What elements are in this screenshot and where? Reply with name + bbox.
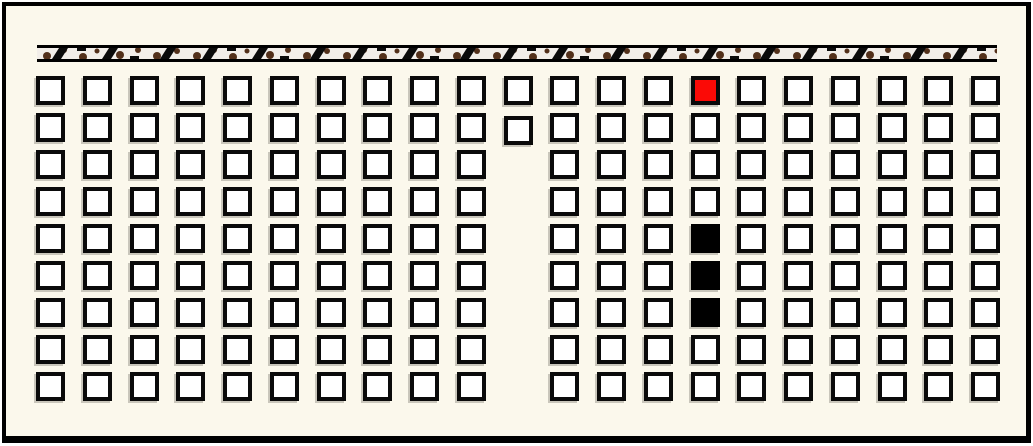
grid-cell[interactable] [971, 261, 1000, 290]
grid-cell[interactable] [176, 150, 205, 179]
grid-cell[interactable] [644, 335, 673, 364]
grid-cell[interactable] [363, 224, 392, 253]
grid-cell[interactable] [176, 261, 205, 290]
grid-cell[interactable] [223, 261, 252, 290]
grid-cell[interactable] [130, 76, 159, 105]
grid-cell[interactable] [597, 298, 626, 327]
grid-cell[interactable] [457, 261, 486, 290]
grid-cell[interactable] [644, 76, 673, 105]
grid-cell[interactable] [317, 150, 346, 179]
grid-cell[interactable] [130, 298, 159, 327]
grid-cell[interactable] [597, 187, 626, 216]
grid-cell[interactable] [644, 187, 673, 216]
grid-cell[interactable] [130, 113, 159, 142]
grid-cell[interactable] [550, 187, 579, 216]
grid-cell[interactable] [924, 372, 953, 401]
grid-cell[interactable] [971, 224, 1000, 253]
grid-cell[interactable] [36, 372, 65, 401]
grid-cell[interactable] [550, 150, 579, 179]
grid-cell[interactable] [410, 76, 439, 105]
grid-cell[interactable] [36, 76, 65, 105]
grid-cell[interactable] [878, 113, 907, 142]
grid-cell[interactable] [878, 187, 907, 216]
filled-cell-black[interactable] [691, 298, 720, 327]
grid-cell[interactable] [317, 261, 346, 290]
textured-bar [37, 45, 997, 62]
grid-cell[interactable] [317, 224, 346, 253]
grid-cell[interactable] [831, 76, 860, 105]
grid-cell[interactable] [644, 150, 673, 179]
grid-cell[interactable] [831, 298, 860, 327]
grid-cell[interactable] [410, 187, 439, 216]
grid-cell[interactable] [83, 298, 112, 327]
grid-cell[interactable] [737, 113, 766, 142]
grid-cell[interactable] [36, 113, 65, 142]
grid-cell[interactable] [457, 335, 486, 364]
grid-cell[interactable] [130, 187, 159, 216]
grid-cell[interactable] [644, 261, 673, 290]
grid-cell[interactable] [223, 113, 252, 142]
grid-cell[interactable] [878, 150, 907, 179]
grid-cell[interactable] [176, 372, 205, 401]
grid-cell[interactable] [878, 261, 907, 290]
grid-cell[interactable] [644, 372, 673, 401]
grid-cell[interactable] [924, 335, 953, 364]
grid-cell[interactable] [36, 261, 65, 290]
grid-cell[interactable] [410, 261, 439, 290]
grid-cell[interactable] [36, 298, 65, 327]
grid-cell[interactable] [83, 150, 112, 179]
grid-cell[interactable] [410, 224, 439, 253]
grid-cell[interactable] [550, 298, 579, 327]
grid-cell[interactable] [363, 187, 392, 216]
grid-cell[interactable] [550, 113, 579, 142]
grid-cell[interactable] [924, 187, 953, 216]
grid-cell[interactable] [737, 261, 766, 290]
grid-cell[interactable] [737, 372, 766, 401]
grid-cell[interactable] [691, 372, 720, 401]
grid-cell[interactable] [363, 113, 392, 142]
grid-cell[interactable] [644, 224, 673, 253]
grid-cell[interactable] [504, 76, 533, 105]
grid-cell[interactable] [270, 76, 299, 105]
grid-cell[interactable] [270, 298, 299, 327]
grid-cell[interactable] [130, 261, 159, 290]
grid-cell[interactable] [223, 76, 252, 105]
grid-cell[interactable] [176, 76, 205, 105]
grid-cell[interactable] [83, 261, 112, 290]
grid-cell[interactable] [176, 335, 205, 364]
grid-cell[interactable] [223, 335, 252, 364]
grid-cell[interactable] [550, 224, 579, 253]
grid-cell[interactable] [363, 261, 392, 290]
grid-cell[interactable] [176, 224, 205, 253]
grid-cell[interactable] [363, 150, 392, 179]
grid-cell[interactable] [924, 76, 953, 105]
grid-cell[interactable] [410, 150, 439, 179]
grid-cell[interactable] [924, 261, 953, 290]
grid-cell[interactable] [784, 224, 813, 253]
grid-cell[interactable] [831, 261, 860, 290]
grid-cell[interactable] [971, 113, 1000, 142]
filled-cell-black[interactable] [691, 261, 720, 290]
grid-cell[interactable] [784, 76, 813, 105]
grid-cell[interactable] [36, 224, 65, 253]
grid-cell[interactable] [597, 261, 626, 290]
grid-cell[interactable] [550, 76, 579, 105]
grid-cell[interactable] [270, 335, 299, 364]
grid-cell[interactable] [924, 224, 953, 253]
grid-cell[interactable] [223, 150, 252, 179]
grid-cell[interactable] [831, 150, 860, 179]
grid-cell[interactable] [36, 150, 65, 179]
grid-cell[interactable] [223, 187, 252, 216]
grid-cell[interactable] [971, 335, 1000, 364]
grid-cell[interactable] [83, 113, 112, 142]
grid-cell[interactable] [737, 76, 766, 105]
grid-cell[interactable] [176, 187, 205, 216]
grid-cell[interactable] [36, 335, 65, 364]
grid-cell[interactable] [550, 261, 579, 290]
grid-cell[interactable] [831, 372, 860, 401]
grid-cell[interactable] [457, 298, 486, 327]
grid-cell[interactable] [597, 150, 626, 179]
grid-cell[interactable] [784, 187, 813, 216]
grid-cell[interactable] [691, 113, 720, 142]
grid-cell[interactable] [176, 298, 205, 327]
grid-cell[interactable] [831, 335, 860, 364]
grid-cell[interactable] [363, 335, 392, 364]
grid-cell[interactable] [270, 261, 299, 290]
grid-cell[interactable] [597, 372, 626, 401]
grid-cell[interactable] [223, 224, 252, 253]
grid-cell[interactable] [878, 76, 907, 105]
textured-bar-pattern [37, 48, 997, 59]
grid-cell[interactable] [317, 187, 346, 216]
grid-cell[interactable] [83, 187, 112, 216]
grid-cell[interactable] [971, 298, 1000, 327]
grid-cell[interactable] [83, 335, 112, 364]
grid-cell[interactable] [597, 76, 626, 105]
grid-cell[interactable] [83, 76, 112, 105]
grid-cell[interactable] [410, 372, 439, 401]
grid-cell[interactable] [831, 187, 860, 216]
grid-cell[interactable] [971, 150, 1000, 179]
grid-cell[interactable] [550, 335, 579, 364]
grid-cell[interactable] [270, 150, 299, 179]
grid-cell[interactable] [831, 224, 860, 253]
grid-cell[interactable] [176, 113, 205, 142]
grid-cell[interactable] [737, 335, 766, 364]
grid-cell[interactable] [363, 298, 392, 327]
grid-cell[interactable] [644, 113, 673, 142]
grid-cell[interactable] [924, 113, 953, 142]
grid-cell[interactable] [457, 150, 486, 179]
grid-cell[interactable] [971, 187, 1000, 216]
grid-cell[interactable] [36, 187, 65, 216]
grid-cell[interactable] [878, 372, 907, 401]
grid-cell[interactable] [130, 372, 159, 401]
grid-cell[interactable] [317, 113, 346, 142]
grid-cell[interactable] [130, 224, 159, 253]
grid-cell[interactable] [597, 224, 626, 253]
grid-cell[interactable] [410, 335, 439, 364]
grid-cell[interactable] [457, 372, 486, 401]
grid-cell[interactable] [784, 335, 813, 364]
grid-cell[interactable] [691, 335, 720, 364]
grid-cell[interactable] [270, 224, 299, 253]
grid-cell[interactable] [737, 224, 766, 253]
grid-cell[interactable] [784, 298, 813, 327]
grid-cell[interactable] [504, 116, 533, 145]
grid-cell[interactable] [410, 298, 439, 327]
grid-cell[interactable] [737, 187, 766, 216]
grid-cell[interactable] [784, 150, 813, 179]
grid-cell[interactable] [83, 372, 112, 401]
grid-cell[interactable] [130, 335, 159, 364]
grid-cell[interactable] [597, 113, 626, 142]
grid-cell[interactable] [270, 372, 299, 401]
grid-cell[interactable] [784, 372, 813, 401]
grid-cell[interactable] [878, 298, 907, 327]
grid-cell[interactable] [737, 298, 766, 327]
grid-cell[interactable] [457, 224, 486, 253]
grid-cell[interactable] [691, 187, 720, 216]
grid-cell[interactable] [457, 113, 486, 142]
grid-cell[interactable] [597, 335, 626, 364]
grid-cell[interactable] [130, 150, 159, 179]
grid-cell[interactable] [363, 372, 392, 401]
grid-cell[interactable] [878, 224, 907, 253]
grid-cell[interactable] [363, 76, 392, 105]
grid-cell[interactable] [784, 261, 813, 290]
grid-cell[interactable] [223, 372, 252, 401]
grid-cell[interactable] [971, 76, 1000, 105]
grid-cell[interactable] [878, 335, 907, 364]
filled-cell-black[interactable] [691, 224, 720, 253]
grid-cell[interactable] [737, 150, 766, 179]
grid-cell[interactable] [317, 335, 346, 364]
grid-cell[interactable] [317, 298, 346, 327]
grid-cell[interactable] [831, 113, 860, 142]
grid-cell[interactable] [270, 187, 299, 216]
grid-cell[interactable] [317, 76, 346, 105]
grid-cell[interactable] [317, 372, 346, 401]
grid-cell[interactable] [924, 298, 953, 327]
grid-cell[interactable] [784, 113, 813, 142]
grid-cell[interactable] [83, 224, 112, 253]
grid-cell[interactable] [691, 150, 720, 179]
grid-cell[interactable] [924, 150, 953, 179]
grid-cell[interactable] [223, 298, 252, 327]
grid-cell[interactable] [971, 372, 1000, 401]
grid-cell[interactable] [457, 76, 486, 105]
grid-cell[interactable] [644, 298, 673, 327]
selected-cell-red[interactable] [691, 76, 720, 105]
grid-cell[interactable] [270, 113, 299, 142]
grid-cell[interactable] [550, 372, 579, 401]
grid-cell[interactable] [410, 113, 439, 142]
grid-cell[interactable] [457, 187, 486, 216]
